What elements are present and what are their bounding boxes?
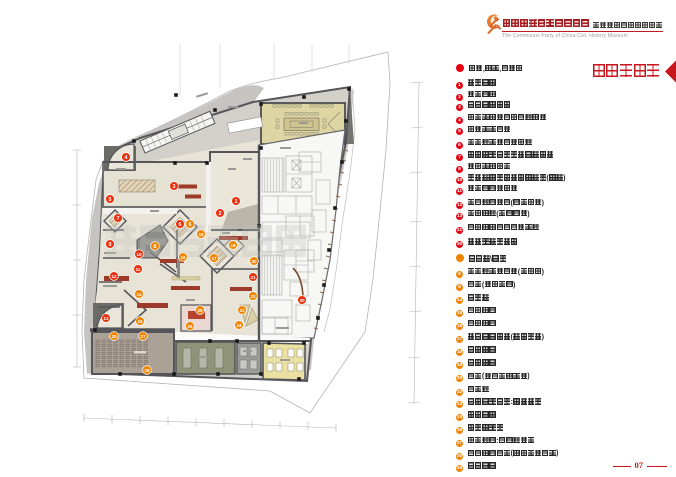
svg-text:6: 6 [179, 222, 182, 228]
svg-text:27: 27 [140, 334, 146, 339]
svg-text:19: 19 [230, 243, 236, 248]
svg-text:30: 30 [299, 298, 305, 303]
svg-text:3: 3 [173, 184, 176, 190]
svg-text:12: 12 [111, 274, 117, 279]
svg-text:15: 15 [137, 319, 143, 324]
svg-text:4: 4 [125, 155, 128, 161]
svg-text:29: 29 [111, 334, 117, 339]
svg-text:1: 1 [235, 199, 238, 205]
svg-text:9: 9 [109, 242, 112, 248]
svg-text:24: 24 [236, 323, 242, 328]
svg-text:26: 26 [187, 324, 193, 329]
svg-text:25: 25 [197, 308, 203, 313]
svg-text:20: 20 [251, 259, 257, 264]
svg-text:28: 28 [144, 368, 150, 373]
svg-text:17: 17 [211, 256, 217, 261]
svg-text:5: 5 [109, 197, 112, 203]
svg-text:23: 23 [239, 308, 245, 313]
svg-text:14: 14 [136, 292, 142, 297]
svg-text:16: 16 [180, 255, 186, 260]
svg-text:6: 6 [189, 222, 192, 228]
svg-text:13: 13 [103, 316, 109, 321]
svg-text:21: 21 [250, 275, 256, 280]
svg-text:11: 11 [136, 267, 141, 272]
svg-text:18: 18 [198, 232, 204, 237]
svg-text:8: 8 [154, 244, 157, 250]
svg-text:2: 2 [219, 211, 222, 217]
svg-text:7: 7 [117, 216, 120, 222]
svg-text:10: 10 [136, 252, 142, 257]
svg-text:22: 22 [250, 294, 256, 299]
